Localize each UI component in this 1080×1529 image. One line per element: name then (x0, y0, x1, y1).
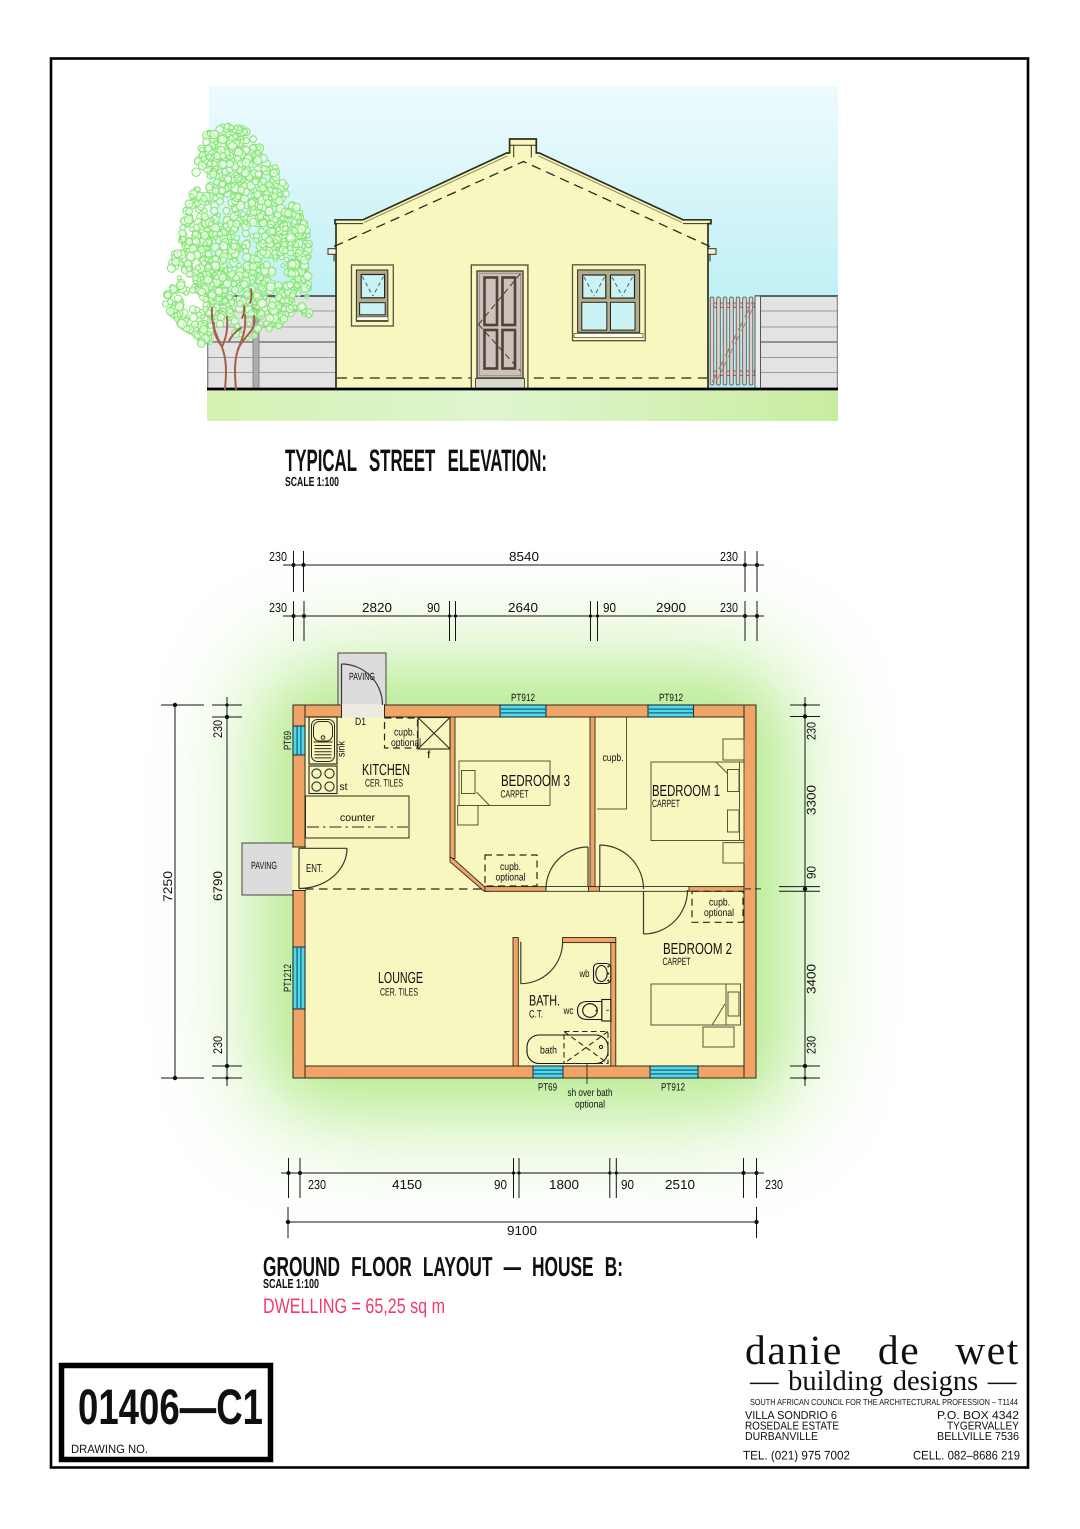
svg-text:PT69: PT69 (282, 731, 294, 750)
svg-text:230: 230 (720, 549, 738, 564)
svg-text:bath: bath (540, 1045, 557, 1057)
svg-text:TEL. (021) 975 7002: TEL. (021) 975 7002 (743, 1449, 850, 1463)
svg-text:KITCHEN: KITCHEN (362, 762, 410, 779)
svg-text:230: 230 (805, 722, 819, 740)
svg-text:sink: sink (336, 740, 348, 757)
svg-text:PT912: PT912 (661, 1082, 685, 1094)
svg-text:CELL. 082–8686 219: CELL. 082–8686 219 (913, 1449, 1020, 1463)
svg-text:1800: 1800 (549, 1177, 579, 1192)
svg-text:f: f (427, 749, 431, 761)
svg-text:SCALE 1:100: SCALE 1:100 (263, 1276, 319, 1291)
svg-text:90: 90 (603, 600, 616, 615)
svg-text:ENT.: ENT. (306, 863, 323, 875)
svg-text:CARPET: CARPET (663, 956, 691, 968)
svg-text:TYPICAL STREET ELEVATION:: TYPICAL STREET ELEVATION: (285, 443, 547, 478)
svg-text:3300: 3300 (805, 785, 819, 815)
svg-text:D1: D1 (355, 716, 366, 728)
svg-text:C.T.: C.T. (529, 1009, 543, 1021)
svg-text:6790: 6790 (211, 871, 225, 901)
svg-text:wc: wc (563, 1005, 574, 1017)
svg-text:st: st (340, 781, 348, 793)
svg-text:90: 90 (494, 1177, 507, 1192)
svg-text:optional: optional (575, 1099, 605, 1111)
svg-text:3400: 3400 (805, 964, 819, 994)
svg-text:DURBANVILLE: DURBANVILLE (745, 1431, 818, 1443)
svg-text:9100: 9100 (507, 1223, 537, 1238)
svg-text:PT912: PT912 (511, 692, 535, 704)
svg-text:2640: 2640 (508, 600, 538, 615)
svg-text:230: 230 (805, 1036, 819, 1054)
svg-text:2900: 2900 (656, 600, 686, 615)
svg-text:PT912: PT912 (659, 692, 683, 704)
svg-text:7250: 7250 (161, 871, 175, 902)
svg-text:optional: optional (496, 872, 526, 884)
svg-text:optional: optional (704, 907, 734, 919)
svg-text:BELLVILLE 7536: BELLVILLE 7536 (937, 1431, 1019, 1443)
svg-text:LOUNGE: LOUNGE (378, 970, 423, 987)
svg-text:230: 230 (720, 600, 738, 615)
svg-text:2510: 2510 (665, 1177, 695, 1192)
svg-text:CARPET: CARPET (501, 789, 529, 801)
svg-text:PT69: PT69 (538, 1082, 557, 1094)
svg-text:90: 90 (427, 600, 440, 615)
svg-text:PAVING: PAVING (251, 860, 277, 872)
svg-text:4150: 4150 (392, 1177, 422, 1192)
svg-text:BEDROOM 3: BEDROOM 3 (501, 773, 570, 790)
svg-text:DWELLING = 65,25 sq m: DWELLING = 65,25 sq m (263, 1295, 445, 1318)
svg-text:wb: wb (579, 968, 590, 980)
svg-text:01406—C1: 01406—C1 (78, 1379, 263, 1435)
svg-text:— building designs —: — building designs — (749, 1366, 1017, 1397)
svg-text:230: 230 (269, 600, 287, 615)
svg-text:230: 230 (211, 720, 225, 738)
svg-text:cupb.: cupb. (603, 752, 624, 764)
svg-text:sh over bath: sh over bath (568, 1087, 613, 1099)
svg-text:230: 230 (211, 1036, 225, 1054)
svg-text:CER. TILES: CER. TILES (380, 987, 418, 999)
svg-text:230: 230 (765, 1177, 783, 1192)
svg-text:counter: counter (340, 812, 375, 824)
svg-text:8540: 8540 (509, 549, 539, 564)
svg-text:CARPET: CARPET (652, 798, 680, 810)
svg-text:230: 230 (269, 549, 287, 564)
svg-text:SOUTH AFRICAN COUNCIL FOR THE: SOUTH AFRICAN COUNCIL FOR THE ARCHITECTU… (750, 1397, 1018, 1407)
svg-text:BATH.: BATH. (529, 993, 560, 1010)
svg-text:230: 230 (308, 1177, 326, 1192)
svg-text:DRAWING NO.: DRAWING NO. (71, 1442, 148, 1456)
svg-text:90: 90 (805, 866, 819, 879)
svg-text:90: 90 (621, 1177, 634, 1192)
svg-text:SCALE 1:100: SCALE 1:100 (285, 474, 339, 489)
svg-text:2820: 2820 (362, 600, 392, 615)
svg-text:optional: optional (391, 737, 421, 749)
svg-text:PT1212: PT1212 (282, 964, 294, 992)
svg-text:CER. TILES: CER. TILES (365, 778, 403, 790)
